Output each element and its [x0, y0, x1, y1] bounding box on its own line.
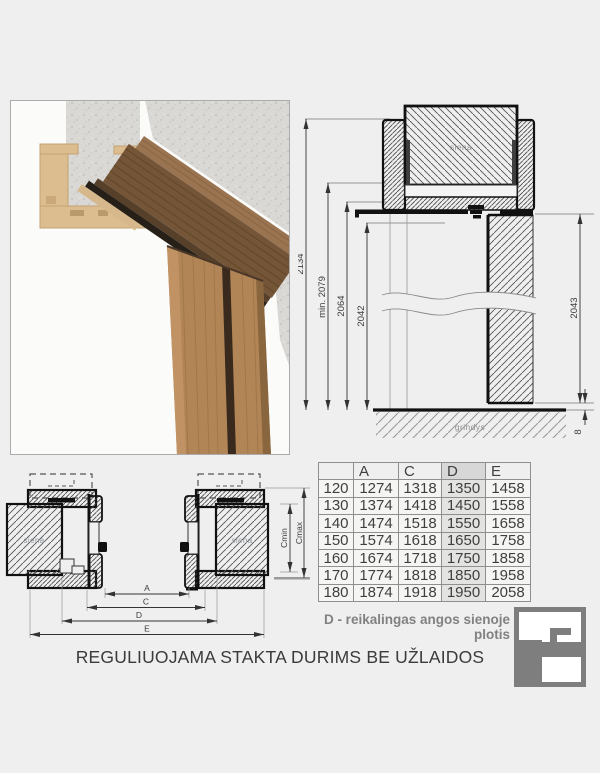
- dim-min-height: min. 2079: [317, 276, 328, 318]
- table-cell: 1274: [354, 480, 399, 497]
- table-header-cell: D: [442, 463, 486, 480]
- table-cell: 1958: [486, 567, 531, 584]
- door-frame-logo: [514, 607, 586, 687]
- dim-frame-height: 2064: [336, 295, 347, 316]
- table-row: 1601674171817501858: [319, 549, 531, 566]
- table-cell: 1550: [442, 515, 486, 532]
- table-cell: 1918: [399, 584, 442, 601]
- table-cell: 120: [319, 480, 354, 497]
- table-cell: 1518: [399, 515, 442, 532]
- dim-total-height: 2134: [298, 253, 306, 274]
- table-header-cell: C: [399, 463, 442, 480]
- wall-label: siena: [450, 142, 472, 152]
- right-frame-section: siena: [180, 474, 268, 589]
- table-cell: 2058: [486, 584, 531, 601]
- left-frame-section: siena: [7, 474, 107, 589]
- table-cell: 1858: [486, 549, 531, 566]
- table-cell: 1774: [354, 567, 399, 584]
- right-jamb: [517, 120, 534, 210]
- wall-label-right: siena: [231, 536, 252, 545]
- table-header-cell: A: [354, 463, 399, 480]
- table-cell: 1318: [399, 480, 442, 497]
- table-cell: 1874: [354, 584, 399, 601]
- note-d-dimension: D - reikalingas angos sienoje plotis: [288, 612, 510, 642]
- table-cell: 150: [319, 532, 354, 549]
- table-cell: 1658: [486, 515, 531, 532]
- dim-e: E: [144, 624, 150, 634]
- table-cell: 180: [319, 584, 354, 601]
- page: 2134 min. 2079 2064 2042 2043 8: [0, 0, 600, 773]
- floor-label: grindys: [455, 422, 485, 432]
- table-header-cell: E: [486, 463, 531, 480]
- table-cell: 1674: [354, 549, 399, 566]
- table-cell: 1818: [399, 567, 442, 584]
- table-row: 1501574161816501758: [319, 532, 531, 549]
- table-row: 1801874191819502058: [319, 584, 531, 601]
- dim-a: A: [144, 583, 150, 593]
- horizontal-section-drawing: siena siena: [2, 458, 317, 646]
- table-cell: 160: [319, 549, 354, 566]
- left-jamb: [383, 120, 405, 210]
- page-title: REGULIUOJAMA STAKTA DURIMS BE UŽLAIDOS: [0, 647, 560, 668]
- table-row: 1701774181818501958: [319, 567, 531, 584]
- table-cell: 1574: [354, 532, 399, 549]
- table-header-cell: [319, 463, 354, 480]
- section-body: [355, 106, 566, 438]
- table-row: 1401474151815501658: [319, 515, 531, 532]
- dim-c: C: [143, 597, 149, 607]
- dim-floor-gap: 8: [573, 429, 584, 434]
- table-header-row: A C D E: [319, 463, 531, 480]
- dim-opening-height: 2042: [356, 305, 367, 326]
- frame-corner-photo: [10, 100, 290, 455]
- dim-cmin: Cmin: [279, 528, 289, 548]
- table-cell: 170: [319, 567, 354, 584]
- table-cell: 130: [319, 497, 354, 514]
- table-cell: 1758: [486, 532, 531, 549]
- wall-label-left: siena: [23, 536, 44, 545]
- table-cell: 1558: [486, 497, 531, 514]
- table-cell: 1450: [442, 497, 486, 514]
- table-row: 1301374141814501558: [319, 497, 531, 514]
- table-row: 1201274131813501458: [319, 480, 531, 497]
- dim-cmax: Cmax: [294, 521, 304, 544]
- size-table: A C D E 12012741318135014581301374141814…: [318, 462, 531, 602]
- table-cell: 1474: [354, 515, 399, 532]
- table-cell: 1350: [442, 480, 486, 497]
- vertical-section-drawing: 2134 min. 2079 2064 2042 2043 8: [298, 93, 600, 463]
- table-cell: 140: [319, 515, 354, 532]
- dim-d: D: [136, 610, 142, 620]
- table-cell: 1374: [354, 497, 399, 514]
- table-cell: 1418: [399, 497, 442, 514]
- table-cell: 1750: [442, 549, 486, 566]
- table-cell: 1718: [399, 549, 442, 566]
- table-cell: 1850: [442, 567, 486, 584]
- table-cell: 1458: [486, 480, 531, 497]
- table-cell: 1650: [442, 532, 486, 549]
- table-cell: 1618: [399, 532, 442, 549]
- table-cell: 1950: [442, 584, 486, 601]
- dim-door-height: 2043: [569, 297, 580, 318]
- vertical-jamb: [167, 246, 271, 455]
